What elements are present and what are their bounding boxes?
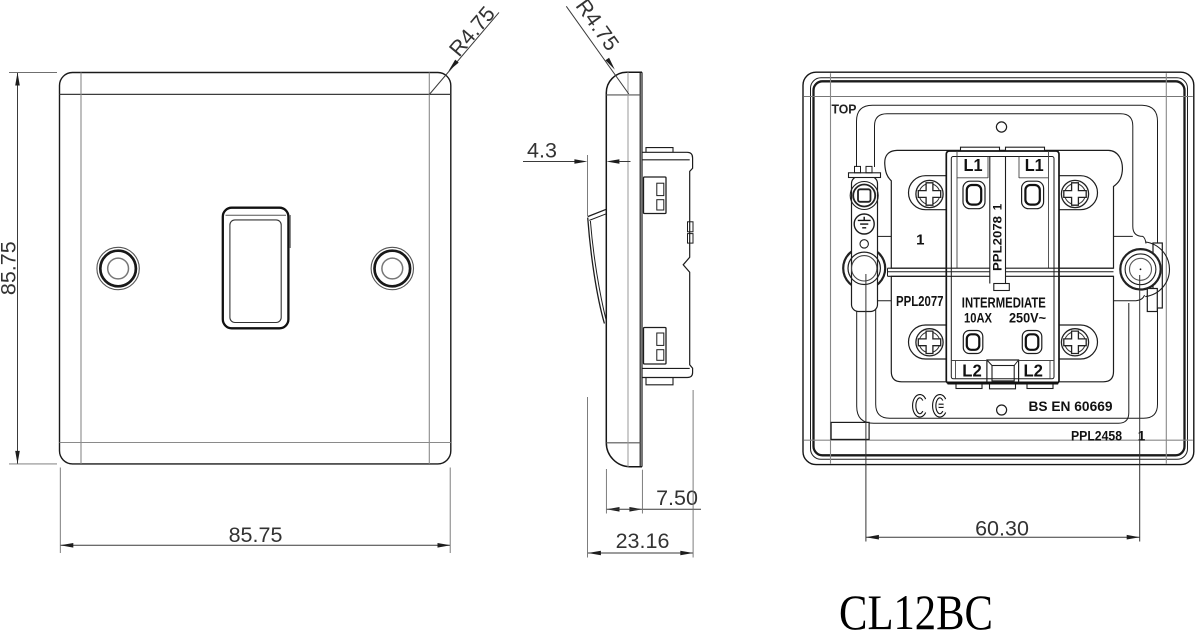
svg-text:L1: L1: [1025, 155, 1044, 175]
svg-text:10AX: 10AX: [964, 310, 993, 326]
svg-text:1: 1: [1138, 429, 1146, 444]
svg-text:7.50: 7.50: [656, 486, 698, 510]
svg-text:1: 1: [992, 203, 1004, 210]
svg-text:L1: L1: [964, 155, 983, 175]
svg-text:CL12BC: CL12BC: [839, 584, 993, 631]
svg-text:85.75: 85.75: [0, 241, 21, 295]
svg-text:TOP: TOP: [832, 102, 857, 117]
svg-text:250V~: 250V~: [1009, 310, 1046, 326]
svg-text:PPL2077: PPL2077: [896, 294, 944, 310]
svg-text:BS EN 60669: BS EN 60669: [1029, 399, 1113, 414]
svg-text:L2: L2: [962, 361, 982, 381]
svg-text:PPL2458: PPL2458: [1071, 429, 1122, 444]
svg-text:L2: L2: [1023, 361, 1043, 381]
svg-text:85.75: 85.75: [229, 523, 283, 547]
svg-text:23.16: 23.16: [616, 529, 670, 553]
svg-text:4.3: 4.3: [527, 139, 557, 163]
svg-text:1: 1: [916, 231, 924, 248]
svg-text:PPL2078: PPL2078: [992, 215, 1004, 271]
svg-text:60.30: 60.30: [975, 516, 1029, 540]
